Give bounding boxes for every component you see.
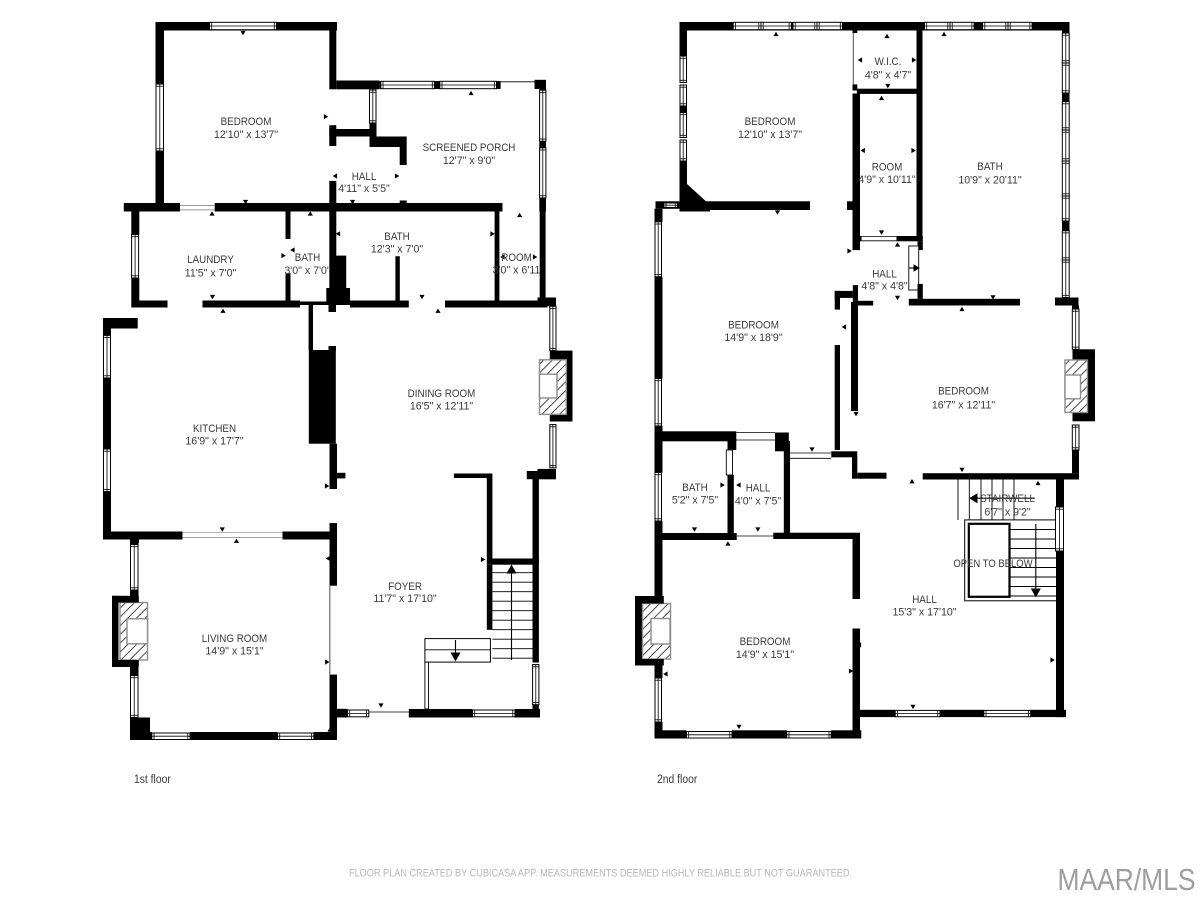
svg-text:BEDROOM: BEDROOM bbox=[221, 115, 272, 128]
svg-text:14'9" x 18'9": 14'9" x 18'9" bbox=[724, 332, 782, 344]
svg-text:OPEN TO BELOW: OPEN TO BELOW bbox=[953, 558, 1032, 570]
svg-text:16'5" x 12'11": 16'5" x 12'11" bbox=[410, 400, 473, 412]
svg-text:4'8" x 4'7": 4'8" x 4'7" bbox=[865, 69, 911, 81]
svg-text:BATH: BATH bbox=[977, 160, 1002, 173]
svg-text:BEDROOM: BEDROOM bbox=[938, 385, 989, 398]
svg-text:14'9" x 15'1": 14'9" x 15'1" bbox=[736, 649, 794, 661]
svg-text:BATH: BATH bbox=[295, 251, 320, 264]
svg-text:ROOM: ROOM bbox=[501, 251, 532, 264]
svg-text:16'9" x 17'7": 16'9" x 17'7" bbox=[185, 435, 243, 447]
svg-text:4'11" x 5'5": 4'11" x 5'5" bbox=[338, 183, 390, 195]
svg-text:HALL: HALL bbox=[352, 170, 377, 183]
svg-text:12'3" x 7'0": 12'3" x 7'0" bbox=[371, 243, 423, 255]
svg-text:1st floor: 1st floor bbox=[134, 774, 171, 787]
svg-text:15'3" x 17'10": 15'3" x 17'10" bbox=[892, 606, 956, 618]
svg-text:LAUNDRY: LAUNDRY bbox=[187, 253, 234, 266]
svg-text:14'9" x 15'1": 14'9" x 15'1" bbox=[205, 645, 263, 657]
svg-text:STAIRWELL: STAIRWELL bbox=[980, 492, 1035, 505]
svg-text:16'7" x 12'11": 16'7" x 12'11" bbox=[932, 399, 995, 411]
svg-text:4'9" x 10'11": 4'9" x 10'11" bbox=[858, 174, 916, 186]
svg-text:BATH: BATH bbox=[384, 230, 409, 243]
svg-text:FOYER: FOYER bbox=[388, 580, 422, 593]
svg-text:HALL: HALL bbox=[872, 268, 897, 281]
svg-text:HALL: HALL bbox=[912, 593, 937, 606]
svg-text:12'10" x 13'7": 12'10" x 13'7" bbox=[738, 129, 802, 141]
svg-text:12'7" x 9'0": 12'7" x 9'0" bbox=[443, 155, 495, 167]
svg-text:BEDROOM: BEDROOM bbox=[740, 635, 791, 648]
svg-text:HALL: HALL bbox=[746, 482, 771, 495]
svg-text:MAAR/MLS: MAAR/MLS bbox=[1058, 863, 1196, 897]
svg-text:2nd floor: 2nd floor bbox=[657, 774, 698, 787]
svg-text:11'5" x 7'0": 11'5" x 7'0" bbox=[185, 267, 237, 279]
svg-text:SCREENED PORCH: SCREENED PORCH bbox=[423, 141, 516, 154]
svg-text:FLOOR PLAN CREATED BY CUBICASA: FLOOR PLAN CREATED BY CUBICASA APP. MEAS… bbox=[349, 868, 852, 880]
svg-text:3'0" x 7'0": 3'0" x 7'0" bbox=[284, 265, 330, 277]
svg-text:KITCHEN: KITCHEN bbox=[193, 422, 236, 435]
svg-text:5'2" x 7'5": 5'2" x 7'5" bbox=[672, 494, 718, 506]
svg-text:W.I.C.: W.I.C. bbox=[875, 55, 902, 68]
svg-text:4'8" x 4'8": 4'8" x 4'8" bbox=[861, 280, 907, 292]
svg-text:LIVING ROOM: LIVING ROOM bbox=[202, 632, 267, 645]
svg-text:11'7" x 17'10": 11'7" x 17'10" bbox=[373, 593, 436, 605]
svg-text:3'0" x 6'11: 3'0" x 6'11 bbox=[493, 264, 541, 276]
svg-text:BEDROOM: BEDROOM bbox=[745, 115, 796, 128]
svg-text:ROOM: ROOM bbox=[872, 161, 903, 174]
svg-text:10'9" x 20'11": 10'9" x 20'11" bbox=[958, 174, 1021, 186]
svg-text:DINING ROOM: DINING ROOM bbox=[408, 387, 476, 400]
svg-text:BEDROOM: BEDROOM bbox=[728, 319, 779, 332]
svg-text:4'0" x 7'5": 4'0" x 7'5" bbox=[735, 495, 781, 507]
svg-text:BATH: BATH bbox=[682, 481, 707, 494]
svg-text:6'7" x 9'2": 6'7" x 9'2" bbox=[984, 506, 1030, 518]
svg-text:12'10" x 13'7": 12'10" x 13'7" bbox=[214, 129, 278, 141]
